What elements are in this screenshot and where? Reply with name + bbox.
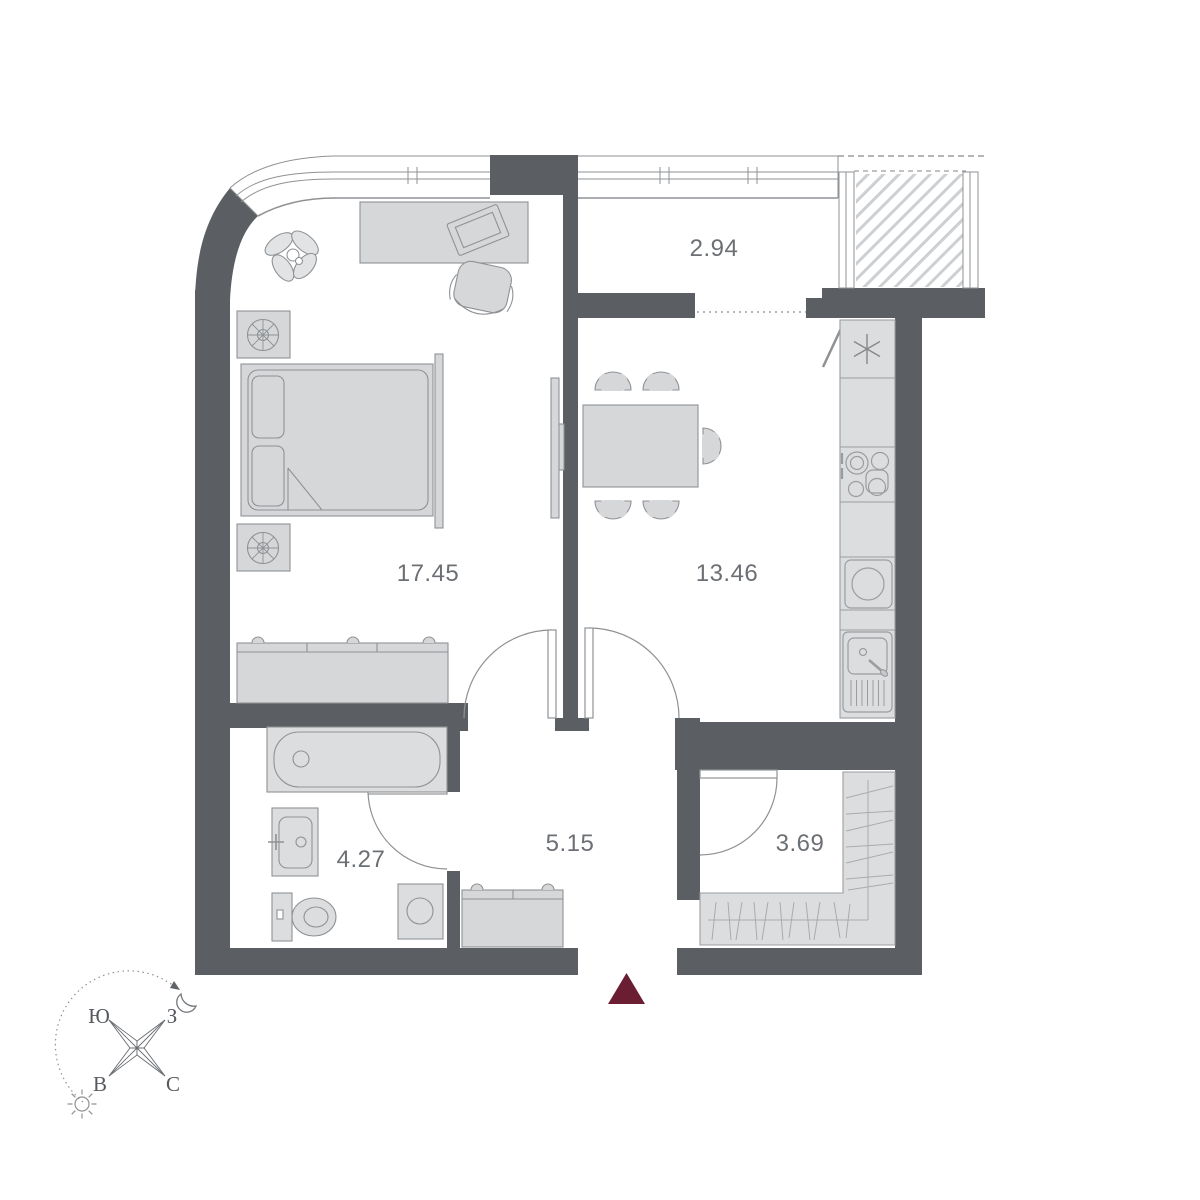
wardrobe-unit xyxy=(700,772,895,945)
bedroom-door xyxy=(464,630,556,718)
washbasin xyxy=(268,808,318,876)
arrow-icon xyxy=(170,981,180,990)
wall-kitchen-bottom xyxy=(675,718,922,770)
dining-chair xyxy=(595,500,631,519)
dining-table xyxy=(583,405,698,487)
bedroom-furniture xyxy=(237,202,564,703)
entrance-marker xyxy=(608,973,645,1004)
room-label-hallway: 5.15 xyxy=(546,830,595,857)
wardrobe-door xyxy=(700,770,777,855)
pillow xyxy=(252,376,284,438)
kitchen-furniture xyxy=(583,320,895,718)
moon-icon xyxy=(177,994,196,1012)
room-label-bedroom: 17.45 xyxy=(397,560,460,587)
bathtub xyxy=(267,727,447,792)
room-label-wardrobe: 3.69 xyxy=(776,830,825,857)
tv xyxy=(551,378,564,518)
dresser xyxy=(237,637,448,703)
compass-label-east: В xyxy=(93,1072,107,1096)
washing-machine xyxy=(398,884,443,939)
compass-rose: Ю З В С xyxy=(55,971,196,1119)
balcony-railing-left xyxy=(839,172,854,288)
tv-screen xyxy=(551,378,559,518)
compass-label-north: С xyxy=(166,1072,180,1096)
wall-top-block xyxy=(490,155,578,195)
kitchen-door xyxy=(585,628,679,718)
pillow xyxy=(252,446,284,506)
balcony-hatch xyxy=(856,174,963,287)
kitchen-window xyxy=(578,156,838,198)
wall-bedroom-kitchen xyxy=(563,195,578,718)
wall-curved-corner xyxy=(195,188,258,300)
room-label-bathroom: 4.27 xyxy=(337,846,386,873)
nightstand-top xyxy=(237,311,290,358)
hallway-cabinet xyxy=(462,884,563,947)
room-label-loggia: 2.94 xyxy=(690,235,739,262)
wall-bathroom-right-upper xyxy=(447,703,460,792)
bedroom-window xyxy=(334,156,490,198)
wall-bottom-left xyxy=(195,948,578,975)
wall-left xyxy=(195,290,230,975)
wall-loggia-stub xyxy=(578,293,695,318)
wall-pier-foot xyxy=(555,718,589,731)
wall-right xyxy=(895,318,922,948)
compass-star xyxy=(109,1020,165,1076)
wall-bedroom-bathroom xyxy=(230,703,468,728)
bathroom-fixtures xyxy=(267,727,447,941)
office-chair xyxy=(446,258,519,320)
bed-footboard xyxy=(435,354,443,528)
dining-chair xyxy=(702,428,721,464)
kitchen-counter xyxy=(840,320,895,718)
hallway-furniture xyxy=(462,884,563,947)
plant-icon xyxy=(261,227,322,285)
wall-wardrobe-left xyxy=(677,770,700,900)
wall-balcony-block xyxy=(806,288,985,318)
floor-plan-canvas: 17.45 13.46 2.94 5.15 4.27 3.69 Ю З В С xyxy=(0,0,1200,1200)
wall-bottom-right xyxy=(677,948,922,975)
dining-chair xyxy=(643,500,679,519)
wall-bathroom-right-lower xyxy=(447,871,460,948)
toilet xyxy=(272,893,336,941)
bed xyxy=(241,354,443,528)
room-label-kitchen: 13.46 xyxy=(696,560,759,587)
balcony-railing-right xyxy=(963,172,978,288)
compass-label-south: Ю xyxy=(88,1004,110,1028)
compass-label-west: З xyxy=(167,1004,178,1028)
dining-chair xyxy=(643,372,679,391)
floor-plan: 17.45 13.46 2.94 5.15 4.27 3.69 Ю З В С xyxy=(0,0,1200,1200)
dining-chair xyxy=(595,372,631,391)
sun-path-arc xyxy=(55,971,175,1102)
nightstand-bottom xyxy=(237,524,290,571)
